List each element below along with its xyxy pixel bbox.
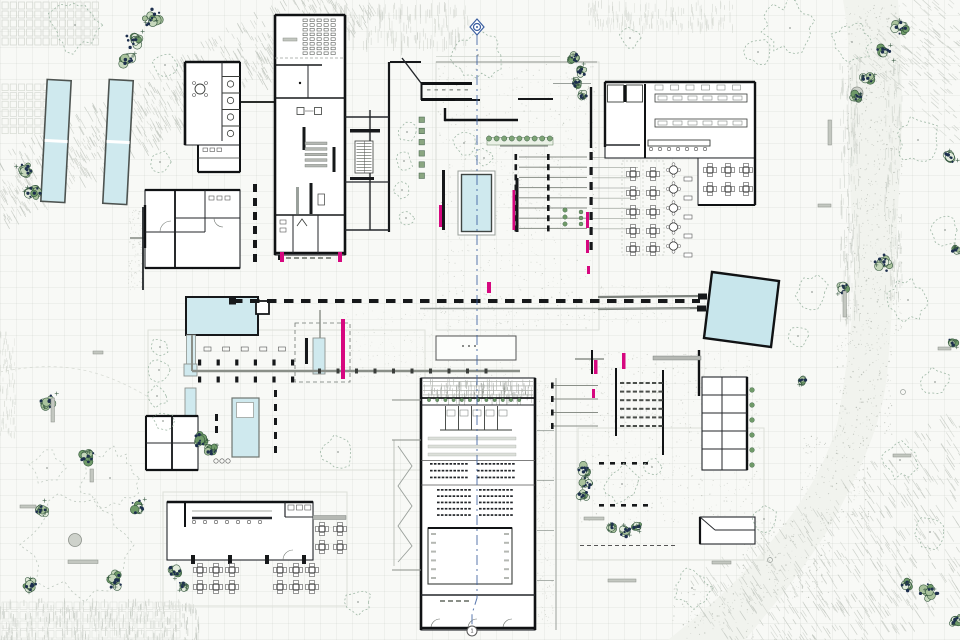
stipple-dot (863, 70, 864, 71)
stipple-dot (524, 235, 525, 236)
stipple-dot (706, 586, 707, 587)
stipple-dot (750, 545, 751, 546)
scratch-texture (0, 331, 16, 438)
stipple-dot (611, 410, 612, 411)
stipple-dot (788, 570, 789, 571)
stipple-dot (851, 492, 852, 493)
stipple-dot (894, 6, 895, 7)
scratch-stroke (13, 149, 16, 155)
scratch-stroke (783, 617, 791, 630)
plaid-corner-nw (84, 20, 90, 27)
stipple-dot (853, 358, 854, 359)
stipple-dot (847, 343, 848, 344)
scratch-stroke (12, 207, 15, 212)
stipple-dot (885, 248, 886, 249)
stipple-dot (778, 553, 779, 554)
stipple-dot (895, 63, 896, 64)
scratch-stroke (39, 162, 41, 166)
stipple-dot (750, 552, 751, 553)
stipple-dot (859, 480, 860, 481)
stipple-dot (857, 461, 858, 462)
stipple-dot (877, 415, 878, 416)
stipple-dot (775, 585, 776, 586)
scratch-stroke (929, 54, 934, 58)
stipple-dot (850, 13, 851, 14)
scratch-stroke (84, 158, 87, 163)
stipple-dot (877, 141, 878, 142)
grid-cell (56, 602, 63, 610)
stipple-dot (868, 142, 869, 143)
scratch-stroke (851, 529, 858, 540)
scratch-stroke (840, 542, 846, 551)
scratch-stroke (940, 478, 944, 484)
scratch-stroke (902, 3, 906, 7)
stipple-dot (865, 50, 866, 51)
stipple-dot (501, 255, 502, 256)
stipple-dot (854, 327, 855, 328)
scratch-texture (588, 0, 732, 35)
scratch-stroke (886, 506, 890, 513)
stipple-dot (875, 245, 876, 246)
scratch-stroke (834, 590, 840, 599)
stipple-dot (850, 80, 851, 81)
stipple-dot (607, 413, 608, 414)
stipple-dot (869, 183, 870, 184)
scratch-stroke (928, 555, 931, 560)
stipple-dot (488, 262, 489, 263)
stipple-dot (868, 491, 869, 492)
stipple-dot (883, 88, 884, 89)
stipple-dot (879, 67, 880, 68)
stipple-dot (580, 413, 581, 414)
stipple-dot (847, 439, 848, 440)
stipple-dot (596, 169, 597, 170)
scratch-stroke (907, 593, 912, 600)
stipple-dot (874, 164, 875, 165)
stipple-dot (635, 413, 636, 414)
stipple-dot (559, 193, 560, 194)
stipple-dot (558, 160, 559, 161)
stipple-dot (555, 263, 556, 264)
plaid-west (10, 127, 16, 134)
stipple-dot (460, 115, 461, 116)
stipple-dot (862, 223, 863, 224)
scratch-stroke (892, 464, 898, 473)
stipple-dot (748, 548, 749, 549)
stipple-dot (443, 274, 444, 275)
stipple-dot (580, 518, 581, 519)
scratch-stroke (77, 166, 79, 169)
stipple-dot (805, 541, 806, 542)
stipple-dot (867, 383, 868, 384)
scratch-stroke (74, 152, 77, 157)
stipple-dot (863, 324, 864, 325)
stipple-dot (467, 250, 468, 251)
plaid-corner-nw (43, 2, 49, 9)
stipple-dot (861, 512, 862, 513)
stipple-dot (845, 338, 846, 339)
stipple-dot (881, 403, 882, 404)
scratch-stroke (913, 0, 921, 6)
stipple-dot (688, 592, 689, 593)
stipple-dot (591, 424, 592, 425)
stipple-dot (752, 636, 753, 637)
stipple-dot (846, 409, 847, 410)
stipple-dot (851, 33, 852, 34)
stipple-dot (453, 251, 454, 252)
stipple-dot (850, 78, 851, 79)
scratch-stroke (209, 39, 213, 47)
scratch-stroke (884, 473, 892, 485)
scratch-stroke (921, 505, 928, 516)
scratch-stroke (92, 103, 97, 113)
stipple-dot (873, 145, 874, 146)
scratch-stroke (831, 517, 840, 530)
scratch-stroke (910, 62, 913, 65)
stipple-dot (538, 193, 539, 194)
stipple-dot (857, 304, 858, 305)
stipple-dot (871, 403, 872, 404)
stipple-dot (712, 618, 713, 619)
scratch-stroke (926, 488, 931, 496)
stipple-dot (887, 231, 888, 232)
stipple-dot (521, 71, 522, 72)
scratch-stroke (926, 601, 930, 607)
stipple-dot (499, 205, 500, 206)
stipple-dot (438, 249, 439, 250)
stipple-dot (851, 364, 852, 365)
stipple-dot (594, 151, 595, 152)
stipple-dot (467, 245, 468, 246)
scratch-stroke (939, 529, 943, 534)
stipple-dot (780, 520, 781, 521)
stipple-dot (774, 571, 775, 572)
stipple-dot (848, 501, 849, 502)
stipple-dot (875, 85, 876, 86)
scratch-stroke (883, 535, 890, 546)
scratch-stroke (792, 607, 800, 619)
stipple-dot (688, 497, 689, 498)
stipple-dot (853, 119, 854, 120)
stipple-dot (674, 588, 675, 589)
stipple-dot (881, 201, 882, 202)
stipple-dot (876, 416, 877, 417)
stipple-dot (865, 499, 866, 500)
stipple-dot (758, 546, 759, 547)
stipple-dot (497, 132, 498, 133)
stipple-dot (869, 381, 870, 382)
stipple-dot (863, 271, 864, 272)
stipple-dot (794, 575, 795, 576)
stipple-dot (612, 416, 613, 417)
stipple-dot (880, 372, 881, 373)
scratch-stroke (133, 132, 137, 139)
stipple-dot (890, 351, 891, 352)
stipple-dot (695, 395, 696, 396)
stipple-dot (709, 598, 710, 599)
stipple-dot (895, 235, 896, 236)
stipple-dot (878, 325, 879, 326)
stipple-dot (865, 169, 866, 170)
scratch-stroke (82, 142, 86, 149)
stipple-dot (849, 361, 850, 362)
stipple-dot (876, 335, 877, 336)
scratch-stroke (947, 46, 954, 53)
stipple-dot (858, 69, 859, 70)
stipple-dot (810, 465, 811, 466)
stipple-dot (848, 316, 849, 317)
stipple-dot (893, 304, 894, 305)
stipple-dot (674, 589, 675, 590)
stipple-dot (777, 573, 778, 574)
stipple-dot (769, 579, 770, 580)
stipple-dot (879, 375, 880, 376)
stipple-dot (880, 378, 881, 379)
stipple-dot (866, 99, 867, 100)
scratch-stroke (917, 47, 921, 50)
stipple-dot (711, 604, 712, 605)
scratch-stroke (853, 549, 859, 558)
stipple-dot (561, 315, 562, 316)
stipple-dot (878, 87, 879, 88)
scratch-stroke (944, 124, 950, 130)
stipple-dot (856, 203, 857, 204)
stipple-dot (854, 326, 855, 327)
scratch-stroke (912, 591, 917, 598)
stipple-dot (496, 218, 497, 219)
stipple-dot (871, 429, 872, 430)
stipple-dot (816, 492, 817, 493)
scratch-stroke (901, 70, 907, 76)
stipple-dot (853, 434, 854, 435)
scratch-stroke (875, 627, 884, 640)
stipple-dot (581, 419, 582, 420)
stipple-dot (889, 305, 890, 306)
stipple-dot (830, 486, 831, 487)
stipple-dot (450, 177, 451, 178)
stipple-dot (880, 12, 881, 13)
stipple-dot (887, 92, 888, 93)
stipple-dot (821, 515, 822, 516)
stipple-dot (879, 215, 880, 216)
stipple-dot (895, 14, 896, 15)
stipple-dot (847, 521, 848, 522)
stipple-dot (899, 169, 900, 170)
stipple-dot (749, 366, 750, 367)
stipple-dot (882, 333, 883, 334)
stipple-dot (867, 71, 868, 72)
scratch-stroke (92, 133, 94, 137)
stipple-dot (869, 419, 870, 420)
scratch-stroke (950, 26, 953, 29)
stipple-dot (867, 85, 868, 86)
stipple-dot (519, 184, 520, 185)
stipple-dot (507, 321, 508, 322)
stipple-dot (865, 205, 866, 206)
stipple-dot (628, 519, 629, 520)
stipple-dot (887, 416, 888, 417)
stipple-dot (495, 163, 496, 164)
stipple-dot (679, 456, 680, 457)
stipple-dot (529, 121, 530, 122)
stipple-dot (697, 615, 698, 616)
stipple-dot (849, 300, 850, 301)
stipple-dot (463, 114, 464, 115)
stipple-dot (871, 102, 872, 103)
stipple-dot (602, 376, 603, 377)
stipple-dot (886, 321, 887, 322)
scratch-stroke (159, 100, 162, 105)
scratch-stroke (877, 541, 883, 550)
scratch-stroke (841, 603, 849, 616)
stipple-dot (685, 424, 686, 425)
stipple-dot (586, 302, 587, 303)
scratch-stroke (219, 36, 222, 41)
scratch-stroke (723, 583, 727, 589)
stipple-dot (807, 453, 808, 454)
plaid-corner-nw (35, 2, 41, 9)
stipple-dot (846, 245, 847, 246)
stipple-dot (560, 274, 561, 275)
scratch-stroke (347, 7, 350, 12)
scratch-stroke (132, 111, 135, 116)
stipple-dot (720, 625, 721, 626)
stipple-dot (848, 254, 849, 255)
stipple-dot (886, 430, 887, 431)
stipple-dot (486, 294, 487, 295)
stipple-dot (880, 249, 881, 250)
stipple-dot (817, 582, 818, 583)
stipple-dot (805, 564, 806, 565)
stipple-dot (496, 325, 497, 326)
stipple-dot (674, 606, 675, 607)
scratch-stroke (775, 624, 781, 633)
scratch-stroke (882, 621, 889, 632)
stipple-dot (867, 220, 868, 221)
stipple-dot (793, 536, 794, 537)
stipple-dot (868, 179, 869, 180)
plaid-corner-nw (76, 20, 82, 27)
stipple-dot (868, 345, 869, 346)
stipple-dot (683, 474, 684, 475)
scratch-stroke (146, 138, 148, 142)
plaid-corner-nw (84, 38, 90, 45)
stipple-dot (852, 371, 853, 372)
stipple-dot (853, 443, 854, 444)
scratch-stroke (896, 539, 900, 545)
scratch-stroke (37, 140, 43, 151)
plaid-corner-nw (27, 20, 33, 27)
stipple-dot (489, 154, 490, 155)
stipple-dot (468, 129, 469, 130)
stipple-dot (867, 284, 868, 285)
stipple-dot (839, 386, 840, 387)
grid-cell (11, 612, 18, 620)
stipple-dot (516, 89, 517, 90)
stipple-dot (872, 362, 873, 363)
stipple-dot (843, 511, 844, 512)
stipple-dot (742, 598, 743, 599)
stipple-dot (891, 354, 892, 355)
scratch-stroke (152, 74, 155, 79)
stipple-dot (663, 463, 664, 464)
plaid-corner-nw (59, 38, 65, 45)
stipple-dot (837, 460, 838, 461)
plaid-corner-nw (51, 11, 57, 18)
stipple-dot (886, 250, 887, 251)
scratch-stroke (825, 602, 830, 609)
stipple-dot (900, 325, 901, 326)
scratch-stroke (923, 477, 926, 482)
stipple-dot (693, 589, 694, 590)
stipple-dot (747, 370, 748, 371)
stipple-dot (887, 239, 888, 240)
scratch-stroke (862, 486, 870, 498)
stipple-dot (864, 508, 865, 509)
stipple-dot (866, 426, 867, 427)
stipple-dot (564, 283, 565, 284)
stipple-dot (461, 239, 462, 240)
stipple-dot (880, 141, 881, 142)
stipple-dot (520, 251, 521, 252)
scratch-stroke (788, 634, 793, 640)
stipple-dot (444, 259, 445, 260)
stipple-dot (867, 343, 868, 344)
stipple-dot (875, 181, 876, 182)
scratch-stroke (372, 7, 376, 14)
scratch-stroke (938, 24, 945, 30)
stipple-dot (484, 307, 485, 308)
stipple-dot (579, 317, 580, 318)
stipple-dot (569, 67, 570, 68)
scratch-stroke (11, 211, 15, 218)
scratch-stroke (828, 542, 832, 548)
stipple-dot (867, 23, 868, 24)
stipple-dot (844, 388, 845, 389)
stipple-dot (559, 168, 560, 169)
scratch-stroke (165, 106, 167, 110)
stipple-dot (866, 490, 867, 491)
stipple-dot (878, 295, 879, 296)
stipple-dot (753, 593, 754, 594)
scratch-stroke (955, 591, 960, 601)
stipple-dot (873, 8, 874, 9)
stipple-dot (875, 426, 876, 427)
plaid-corner-nw (18, 38, 24, 45)
scratch-stroke (911, 21, 916, 26)
stipple-dot (586, 384, 587, 385)
scratch-stroke (933, 29, 941, 36)
grid-cell (65, 621, 72, 629)
stipple-dot (448, 236, 449, 237)
stipple-dot (519, 180, 520, 181)
scratch-stroke (855, 620, 862, 630)
stipple-dot (532, 186, 533, 187)
scratch-stroke (255, 37, 257, 41)
stipple-dot (792, 598, 793, 599)
stipple-dot (464, 130, 465, 131)
scratch-stroke (167, 102, 169, 106)
plaid-west (2, 118, 8, 125)
stipple-dot (755, 463, 756, 464)
stipple-dot (700, 592, 701, 593)
stipple-dot (567, 107, 568, 108)
stipple-dot (882, 144, 883, 145)
scratch-stroke (808, 587, 817, 600)
stipple-dot (879, 290, 880, 291)
stipple-dot (868, 513, 869, 514)
stipple-dot (850, 67, 851, 68)
